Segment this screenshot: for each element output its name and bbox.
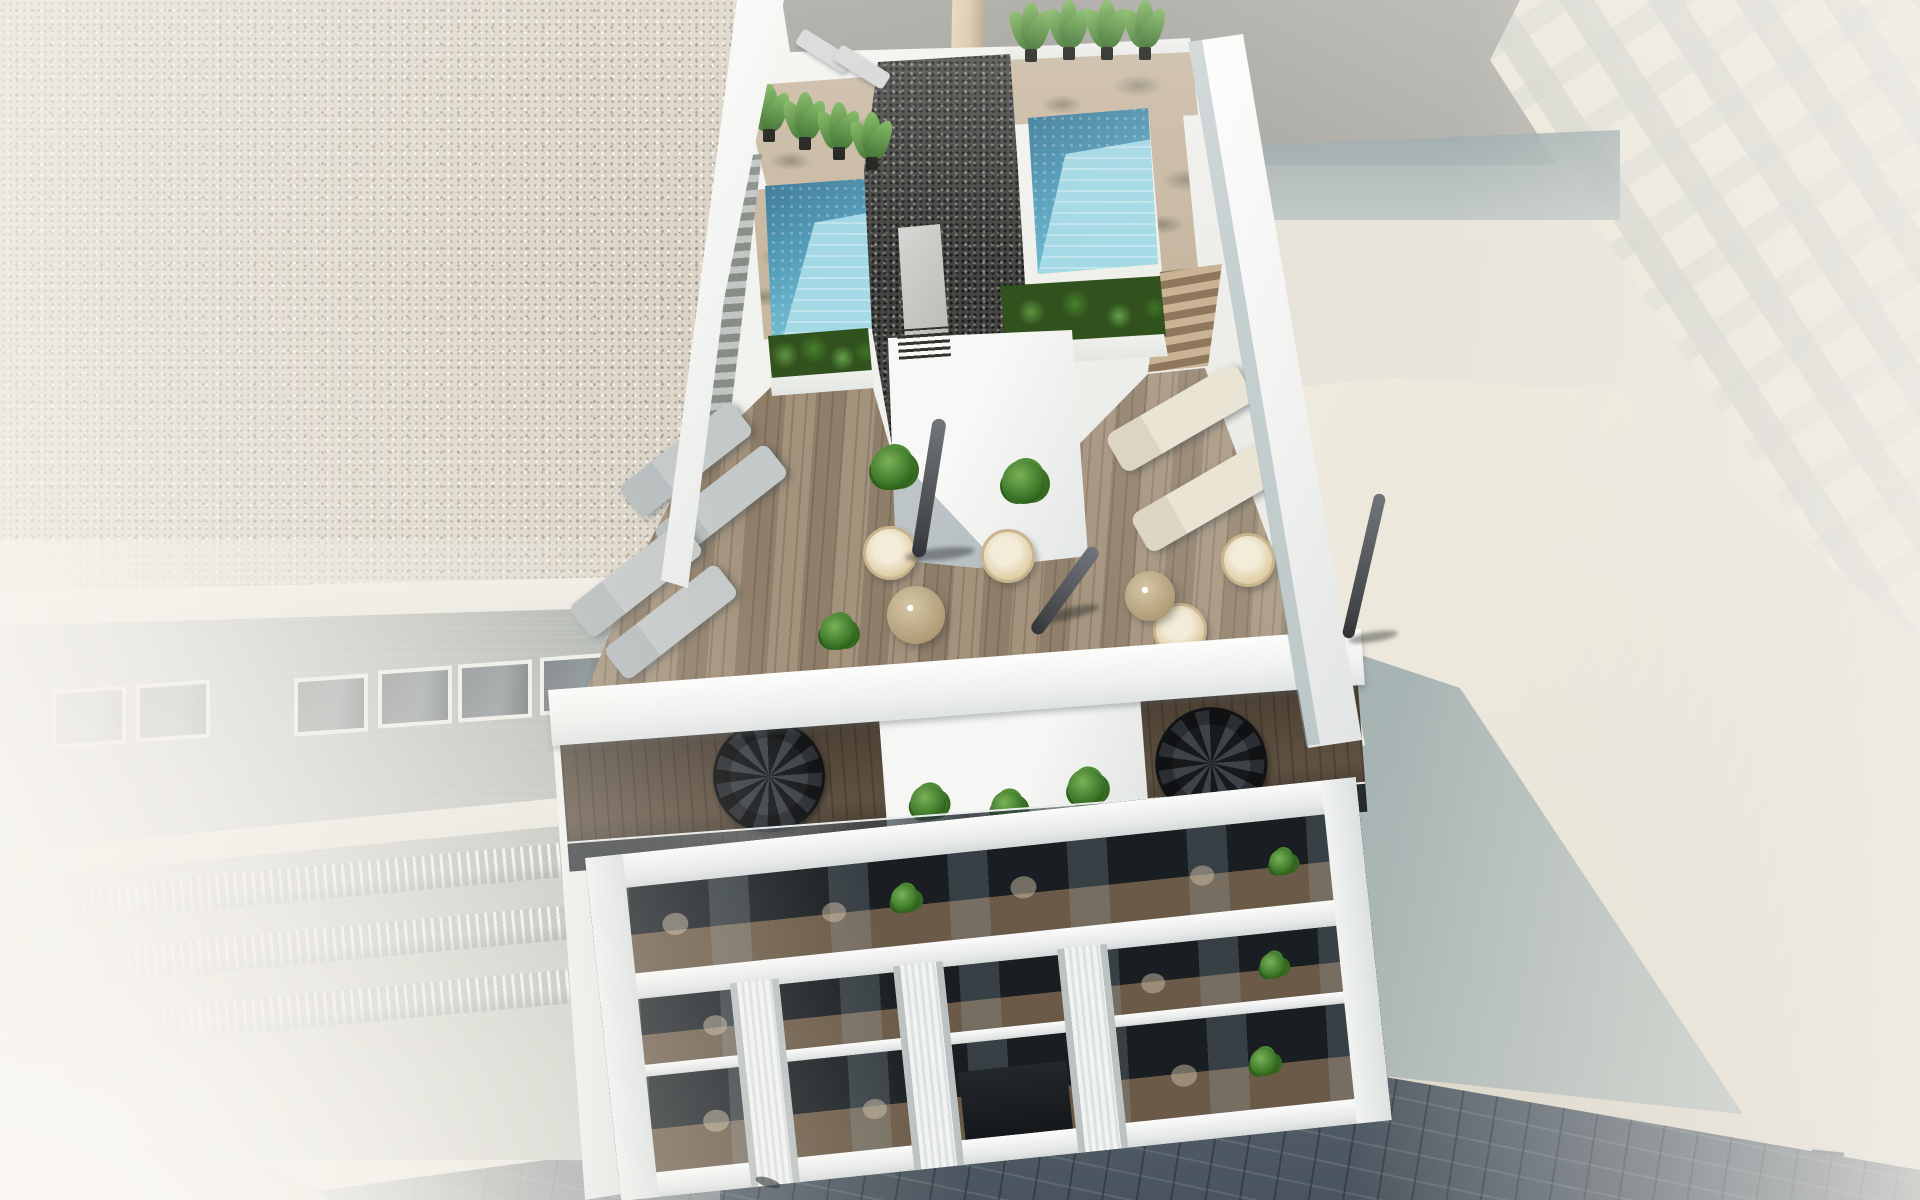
window	[136, 679, 210, 742]
spiral-staircase	[709, 716, 829, 836]
potted-plant	[820, 614, 856, 650]
banana-plant	[1050, 0, 1088, 60]
hanging-chair	[1221, 533, 1275, 587]
balcony-furniture	[1170, 1063, 1198, 1088]
window	[378, 665, 452, 728]
round-table	[1125, 571, 1175, 621]
hanging-chair	[981, 529, 1035, 583]
potted-plant	[1268, 848, 1297, 877]
potted-plant	[890, 883, 921, 914]
pool-steps	[1022, 105, 1167, 280]
balcony-furniture	[1009, 875, 1037, 900]
potted-plant	[1249, 1047, 1280, 1078]
balcony-furniture	[862, 1098, 888, 1120]
left-building-gravel-roof	[0, 0, 740, 600]
window	[294, 673, 368, 736]
banana-plant	[1012, 2, 1050, 62]
balcony-furniture	[821, 901, 847, 923]
banana-plant	[1088, 0, 1126, 60]
banana-plant	[853, 112, 891, 170]
balcony-furniture	[702, 1014, 728, 1036]
hanging-chair	[863, 526, 917, 580]
window	[52, 685, 126, 748]
entrance-recess	[958, 1061, 1073, 1140]
banana-plant	[1126, 0, 1164, 60]
balcony-furniture	[702, 1108, 730, 1133]
architectural-render: Aerial 3D architectural rendering, brigh…	[0, 0, 1920, 1200]
round-table	[887, 586, 945, 644]
pool-right	[1022, 105, 1167, 280]
vent-louvers	[897, 326, 951, 360]
balcony-furniture	[1140, 972, 1166, 994]
balcony-furniture	[1189, 864, 1215, 886]
potted-palm	[871, 446, 915, 490]
potted-palm	[1002, 460, 1046, 504]
potted-plant	[1259, 951, 1288, 980]
window	[458, 659, 532, 722]
balcony-furniture	[661, 912, 689, 937]
